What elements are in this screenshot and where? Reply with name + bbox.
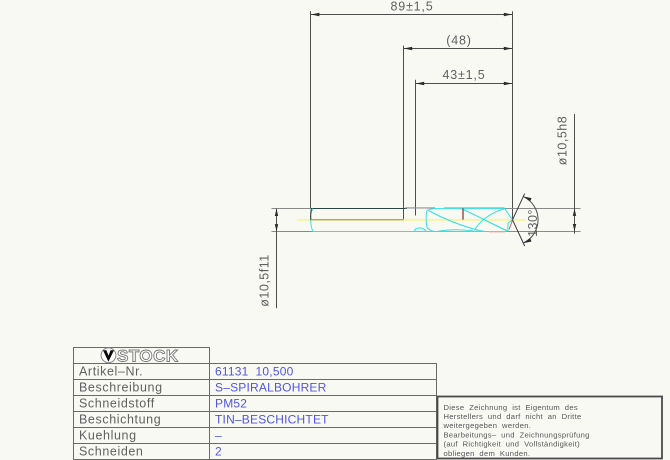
svg-text:S–SPIRALBOHRER: S–SPIRALBOHRER [215, 381, 327, 395]
svg-text:Bearbeitungs– und Zeichnungspr: Bearbeitungs– und Zeichnungsprüfung [444, 430, 590, 439]
svg-text:Kuehlung: Kuehlung [79, 429, 137, 443]
svg-text:89±1,5: 89±1,5 [391, 0, 434, 14]
svg-text:(auf Richtigkeit und Vollständ: (auf Richtigkeit und Vollständigkeit) [444, 440, 581, 449]
svg-text:130°: 130° [526, 209, 540, 237]
svg-text:Artikel–Nr.: Artikel–Nr. [79, 365, 143, 379]
svg-text:61131 10,500: 61131 10,500 [215, 365, 294, 379]
svg-text:ø10,5f11: ø10,5f11 [258, 254, 272, 306]
svg-text:Beschreibung: Beschreibung [79, 381, 163, 395]
svg-text:Schneiden: Schneiden [79, 445, 143, 459]
svg-text:PM52: PM52 [215, 397, 247, 411]
svg-text:Beschichtung: Beschichtung [79, 413, 161, 427]
svg-text:2: 2 [215, 445, 222, 459]
svg-text:TIN–BESCHICHTET: TIN–BESCHICHTET [215, 413, 329, 427]
svg-text:(48): (48) [446, 34, 471, 48]
svg-text:obliegen dem Kunden.: obliegen dem Kunden. [444, 449, 531, 458]
svg-text:Herstellers und darf nicht an: Herstellers und darf nicht an Dritte [444, 412, 582, 421]
svg-text:STOCK: STOCK [117, 346, 179, 365]
svg-text:–: – [215, 429, 222, 443]
svg-text:43±1,5: 43±1,5 [443, 68, 486, 82]
svg-text:Diese Zeichnung ist Eigentum d: Diese Zeichnung ist Eigentum des [444, 403, 578, 412]
svg-text:Schneidstoff: Schneidstoff [79, 397, 155, 411]
svg-text:weitergegeben werden.: weitergegeben werden. [443, 421, 532, 430]
svg-text:ø10,5h8: ø10,5h8 [556, 116, 570, 165]
